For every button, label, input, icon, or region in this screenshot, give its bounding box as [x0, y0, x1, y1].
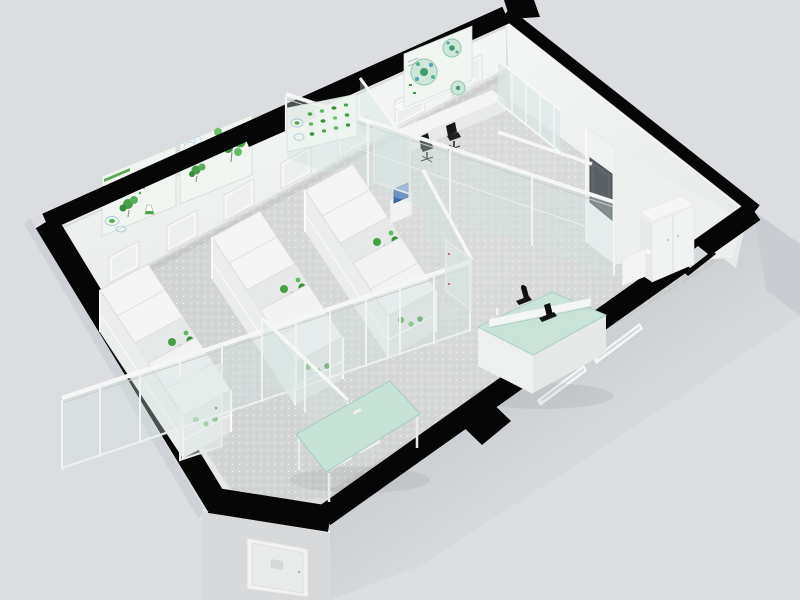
glass-door — [180, 364, 222, 460]
top-wall-notch — [504, 0, 540, 19]
lab-isometric-scene — [0, 0, 800, 600]
door-handle — [298, 571, 301, 574]
door-handle — [215, 407, 218, 410]
glass-door — [374, 125, 410, 194]
exterior-door — [247, 538, 308, 597]
floor-plan-render — [0, 0, 800, 600]
